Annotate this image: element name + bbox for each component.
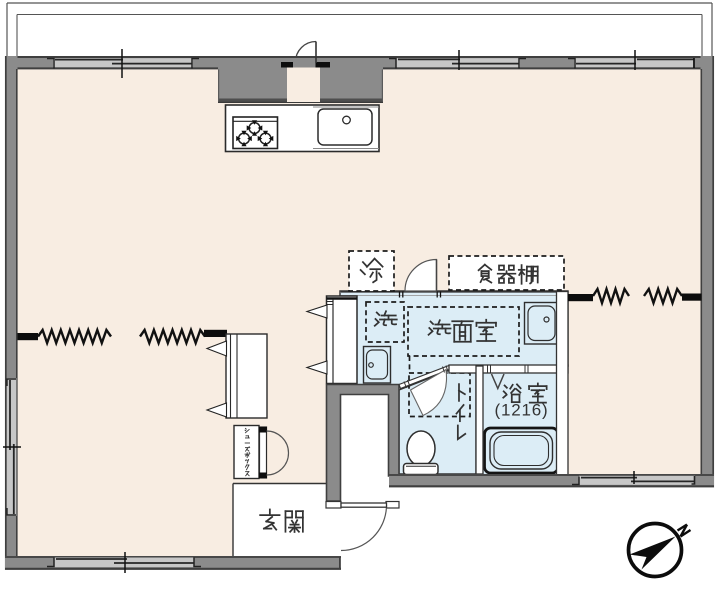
svg-text:(1216): (1216) [495, 401, 549, 420]
